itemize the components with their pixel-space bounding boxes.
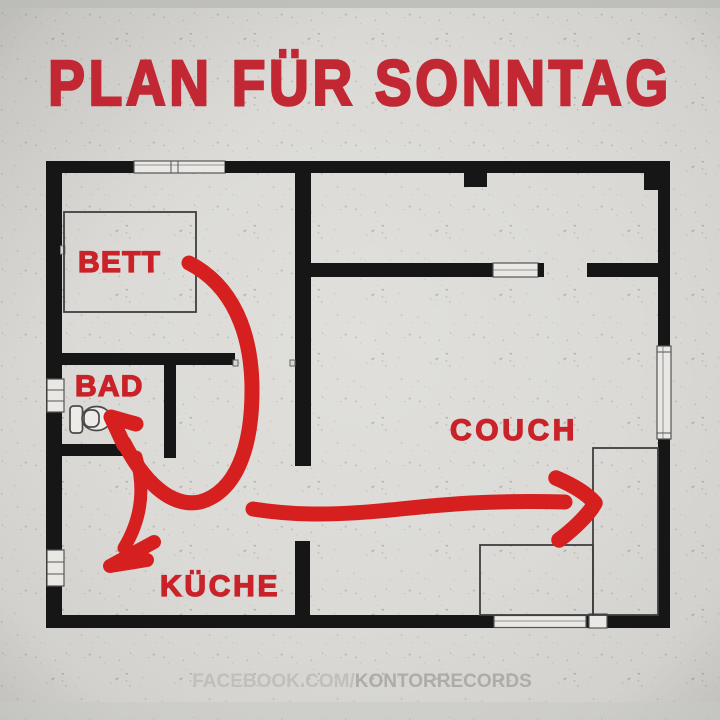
svg-text:FACEBOOK.COM/KONTORRECORDS: FACEBOOK.COM/KONTORRECORDS [192,671,532,692]
svg-text:BETT: BETT [78,246,161,279]
svg-text:BAD: BAD [75,370,144,403]
svg-text:PLAN FÜR SONNTAG: PLAN FÜR SONNTAG [48,47,672,119]
svg-text:KÜCHE: KÜCHE [160,570,280,603]
svg-text:COUCH: COUCH [450,414,578,447]
